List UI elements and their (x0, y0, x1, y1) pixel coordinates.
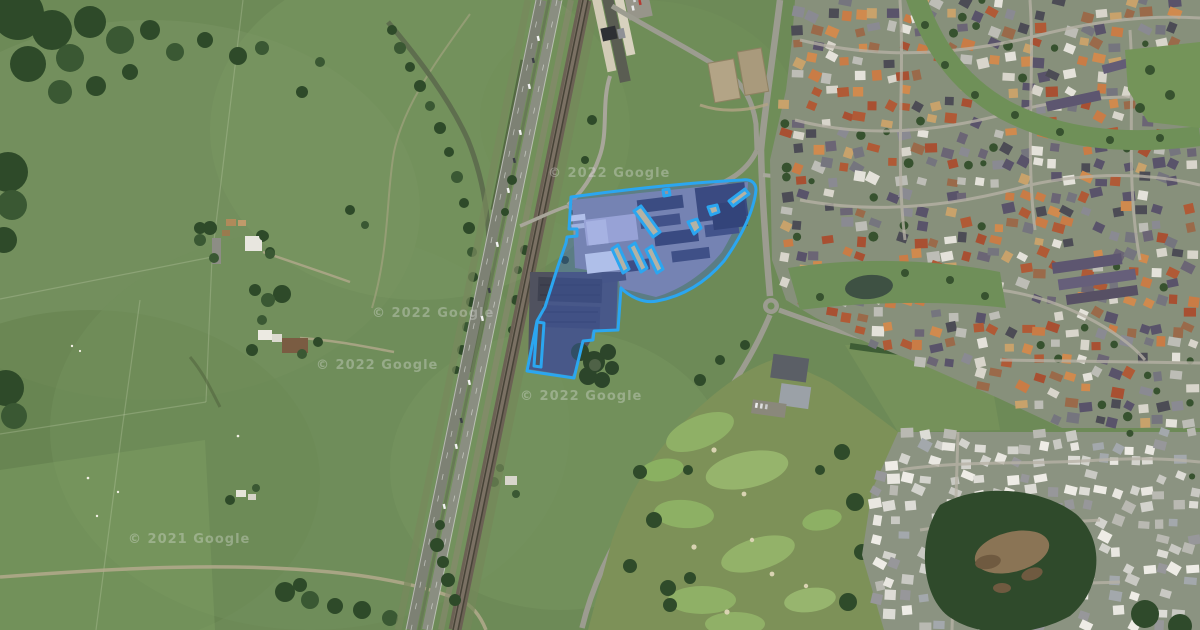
google-attribution-watermark: © 2021 Google (128, 532, 250, 547)
house-roof (1141, 486, 1154, 496)
house-roof (1169, 519, 1178, 527)
house-roof (1002, 73, 1015, 81)
house-roof (1020, 263, 1033, 274)
house-roof (806, 52, 817, 63)
house-roof (990, 179, 998, 187)
house-roof (839, 57, 848, 66)
house-roof (1008, 446, 1019, 454)
house-roof (829, 8, 839, 18)
house-roof (1170, 370, 1183, 380)
house-roof (1152, 268, 1162, 277)
house-roof (853, 87, 863, 97)
house-roof (1091, 342, 1100, 350)
house-roof (820, 157, 833, 169)
house-roof (778, 100, 789, 109)
house-roof (1083, 146, 1093, 155)
house-roof (1168, 0, 1182, 8)
house-roof (1081, 384, 1090, 392)
house-roof (1106, 88, 1117, 96)
house-roof (914, 356, 926, 367)
house-roof (782, 191, 794, 203)
house-roof (945, 97, 954, 106)
suburb-tree (978, 222, 986, 230)
house-roof (887, 473, 900, 484)
house-roof (796, 176, 807, 185)
house-roof (856, 9, 867, 20)
house-roof (1156, 248, 1167, 258)
house-roof (901, 147, 912, 157)
suburb-tree (1110, 341, 1118, 349)
house-roof (840, 208, 853, 216)
house-roof (1007, 475, 1020, 486)
house-roof (855, 71, 866, 80)
house-roof (901, 574, 914, 585)
house-roof (1138, 404, 1149, 413)
house-roof (915, 329, 925, 337)
house-roof (792, 5, 805, 17)
house-roof (1111, 547, 1120, 557)
house-roof (1018, 445, 1030, 455)
house-roof (1166, 419, 1178, 428)
house-roof (1008, 88, 1018, 98)
house-roof (977, 337, 988, 349)
house-roof (1065, 430, 1077, 442)
house-roof (872, 70, 882, 81)
house-roof (945, 321, 957, 333)
house-roof (874, 307, 883, 316)
house-roof (1155, 25, 1165, 35)
house-roof (1152, 491, 1164, 499)
house-roof (1048, 487, 1059, 497)
house-roof (1033, 429, 1046, 439)
house-roof (917, 221, 928, 232)
house-roof (1006, 218, 1019, 228)
house-roof (975, 312, 986, 324)
house-roof (1030, 146, 1043, 156)
house-roof (1110, 176, 1121, 186)
house-roof (885, 461, 898, 471)
house-roof (1173, 327, 1183, 338)
house-roof (1035, 206, 1047, 217)
house-roof (1187, 428, 1197, 437)
house-roof (1184, 308, 1196, 317)
house-roof (1050, 143, 1060, 152)
house-roof (855, 221, 868, 231)
house-roof (1169, 294, 1178, 304)
suburb-tree (1153, 387, 1160, 394)
suburb-tree (1123, 412, 1132, 421)
house-roof (919, 429, 931, 440)
suburb-tree (1081, 324, 1089, 332)
house-roof (873, 515, 883, 527)
house-roof (973, 323, 984, 333)
house-roof (1155, 519, 1163, 528)
house-roof (791, 25, 803, 35)
house-roof (957, 23, 968, 31)
house-roof (783, 239, 793, 248)
house-roof (1066, 329, 1079, 337)
house-roof (1024, 483, 1037, 494)
house-roof (1188, 296, 1200, 308)
suburb-tree (1160, 283, 1168, 291)
house-roof (1034, 401, 1043, 410)
house-roof (1046, 86, 1059, 97)
suburb-tree (1142, 41, 1148, 47)
house-roof (1186, 160, 1197, 169)
suburb-tree (949, 29, 958, 38)
house-roof (1187, 250, 1198, 259)
house-roof (1156, 336, 1165, 347)
house-roof (840, 312, 851, 323)
house-roof (933, 621, 945, 629)
house-roof (1109, 590, 1123, 602)
house-roof (989, 55, 1000, 65)
suburb-tree (1037, 341, 1045, 349)
house-roof (931, 309, 941, 317)
house-roof (837, 87, 849, 97)
house-roof (1079, 37, 1089, 46)
house-roof (944, 112, 957, 123)
house-roof (814, 145, 825, 155)
house-roof (779, 252, 789, 262)
house-roof (842, 11, 852, 22)
house-roof (822, 235, 834, 244)
house-roof (883, 340, 893, 351)
suburb-tree (916, 117, 925, 126)
house-roof (1124, 447, 1133, 455)
house-roof (1138, 521, 1150, 529)
suburb-tree (780, 119, 789, 128)
house-roof (1063, 238, 1074, 247)
house-roof (1005, 51, 1017, 61)
house-roof (944, 236, 957, 245)
house-roof (919, 623, 931, 630)
house-roof (1065, 397, 1079, 408)
house-roof (1080, 339, 1089, 350)
suburb-tree (1126, 430, 1133, 437)
house-roof (1047, 159, 1056, 169)
house-roof (900, 590, 911, 601)
house-roof (889, 485, 898, 496)
house-roof (918, 594, 928, 603)
suburb-tree (904, 158, 914, 168)
house-roof (919, 476, 931, 484)
house-roof (1111, 387, 1125, 399)
house-roof (994, 0, 1003, 8)
house-roof (891, 516, 900, 524)
suburb-tree (793, 233, 801, 241)
house-roof (1187, 148, 1197, 157)
suburb-tree (1144, 372, 1151, 379)
suburb-tree (989, 143, 998, 152)
house-roof (792, 221, 801, 230)
google-attribution-watermark: © 2022 Google (520, 389, 642, 404)
house-roof (1051, 340, 1060, 347)
house-roof (1186, 384, 1199, 392)
house-roof (911, 248, 921, 258)
house-roof (957, 232, 966, 243)
house-roof (839, 162, 848, 171)
suburb-tree (1018, 73, 1027, 82)
suburb-tree (980, 160, 986, 166)
house-roof (888, 158, 897, 166)
house-roof (942, 442, 956, 451)
house-roof (957, 177, 966, 185)
suburb-tree (782, 173, 791, 182)
suburb-tree (808, 178, 814, 184)
house-roof (882, 500, 896, 512)
house-roof (821, 73, 832, 85)
house-roof (1032, 327, 1045, 336)
house-roof (901, 428, 914, 438)
house-roof (1113, 605, 1125, 615)
house-roof (1096, 9, 1108, 18)
suburb-tree (964, 161, 973, 170)
house-roof (1005, 344, 1014, 352)
house-roof (1039, 441, 1049, 452)
house-roof (1135, 205, 1147, 214)
suburb-tree (1186, 399, 1193, 406)
house-roof (905, 500, 917, 510)
house-roof (1054, 311, 1064, 321)
suburb-tree (1051, 44, 1058, 51)
house-roof (1153, 371, 1162, 381)
house-roof (808, 251, 818, 260)
suburb-tree (782, 163, 792, 173)
house-roof (1174, 500, 1185, 510)
house-roof (806, 129, 816, 138)
house-roof (1143, 565, 1156, 574)
suburb-tree (868, 232, 878, 242)
house-roof (943, 429, 957, 440)
screenshot-stage: © 2022 Google© 2022 Google© 2022 Google©… (0, 0, 1200, 630)
house-roof (944, 358, 954, 367)
house-roof (1079, 487, 1090, 496)
house-roof (1109, 98, 1119, 108)
house-roof (872, 326, 885, 337)
house-roof (887, 9, 900, 18)
house-roof (925, 143, 937, 153)
house-roof (975, 177, 985, 186)
house-roof (883, 322, 893, 332)
google-attribution-watermark: © 2022 Google (316, 358, 438, 373)
house-roof (1142, 230, 1153, 242)
house-roof (955, 328, 967, 338)
house-roof (1121, 201, 1132, 211)
house-roof (1189, 501, 1198, 509)
house-roof (1032, 57, 1044, 68)
house-roof (1184, 577, 1197, 585)
house-roof (1015, 400, 1028, 409)
house-roof (1152, 157, 1166, 169)
house-roof (912, 340, 922, 350)
house-roof (841, 217, 853, 227)
house-roof (992, 160, 1004, 170)
house-roof (1095, 179, 1107, 187)
house-roof (1152, 415, 1163, 424)
house-roof (1111, 399, 1121, 409)
suburb-tree (1189, 473, 1195, 479)
house-roof (1124, 100, 1136, 109)
suburb-tree (1098, 401, 1107, 410)
google-attribution-watermark: © 2022 Google (548, 166, 670, 181)
house-roof (884, 589, 896, 600)
house-roof (826, 85, 838, 93)
house-roof (1108, 43, 1120, 52)
house-roof (1137, 190, 1148, 201)
suburb-tree (972, 22, 980, 30)
house-roof (825, 141, 837, 152)
house-roof (1172, 248, 1184, 257)
house-roof (1190, 488, 1200, 498)
house-roof (1172, 353, 1180, 362)
house-roof (899, 531, 910, 538)
house-roof (1140, 418, 1150, 428)
house-roof (857, 237, 866, 248)
house-roof (901, 85, 911, 95)
house-roof (947, 9, 956, 18)
house-roof (1139, 6, 1152, 17)
house-roof (853, 170, 865, 182)
house-roof (1152, 221, 1161, 230)
house-roof (1066, 412, 1080, 424)
house-roof (1005, 128, 1017, 136)
house-roof (883, 609, 896, 620)
house-roof (949, 313, 959, 322)
house-roof (1035, 23, 1047, 34)
house-roof (793, 143, 803, 153)
house-roof (1070, 442, 1079, 451)
house-roof (1005, 192, 1015, 201)
house-roof (1111, 27, 1124, 38)
house-roof (792, 70, 804, 78)
house-roof (1171, 401, 1183, 412)
house-roof (915, 239, 928, 249)
suburb-tree (870, 193, 878, 201)
house-roof (828, 178, 838, 188)
house-roof (1079, 402, 1093, 412)
house-roof (883, 60, 894, 68)
house-roof (867, 8, 877, 18)
suburb-tree (958, 13, 967, 22)
google-attribution-watermark: © 2022 Google (372, 306, 494, 321)
house-roof (867, 101, 876, 110)
house-roof (1186, 565, 1199, 574)
house-roof (975, 444, 986, 452)
satellite-map-view[interactable]: © 2022 Google© 2022 Google© 2022 Google©… (0, 0, 1200, 630)
house-roof (995, 224, 1003, 232)
house-roof (973, 475, 984, 483)
house-roof (1051, 193, 1062, 204)
house-roof (1033, 269, 1046, 279)
house-roof (988, 248, 1000, 256)
house-roof (902, 605, 913, 615)
house-roof (1035, 10, 1046, 20)
